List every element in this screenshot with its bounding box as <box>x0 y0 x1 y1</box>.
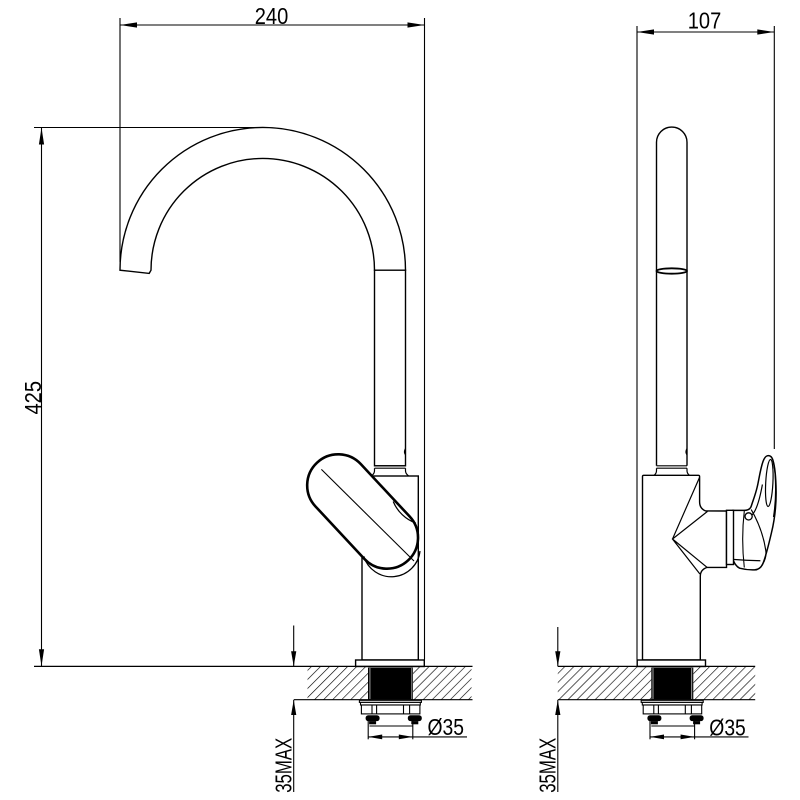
svg-text:Ø35: Ø35 <box>428 714 465 740</box>
svg-text:Ø35: Ø35 <box>709 715 746 741</box>
svg-text:107: 107 <box>688 8 722 34</box>
svg-text:35MAX: 35MAX <box>535 738 561 793</box>
svg-text:35MAX: 35MAX <box>271 738 297 793</box>
svg-text:425: 425 <box>20 381 46 415</box>
svg-text:240: 240 <box>255 3 289 29</box>
